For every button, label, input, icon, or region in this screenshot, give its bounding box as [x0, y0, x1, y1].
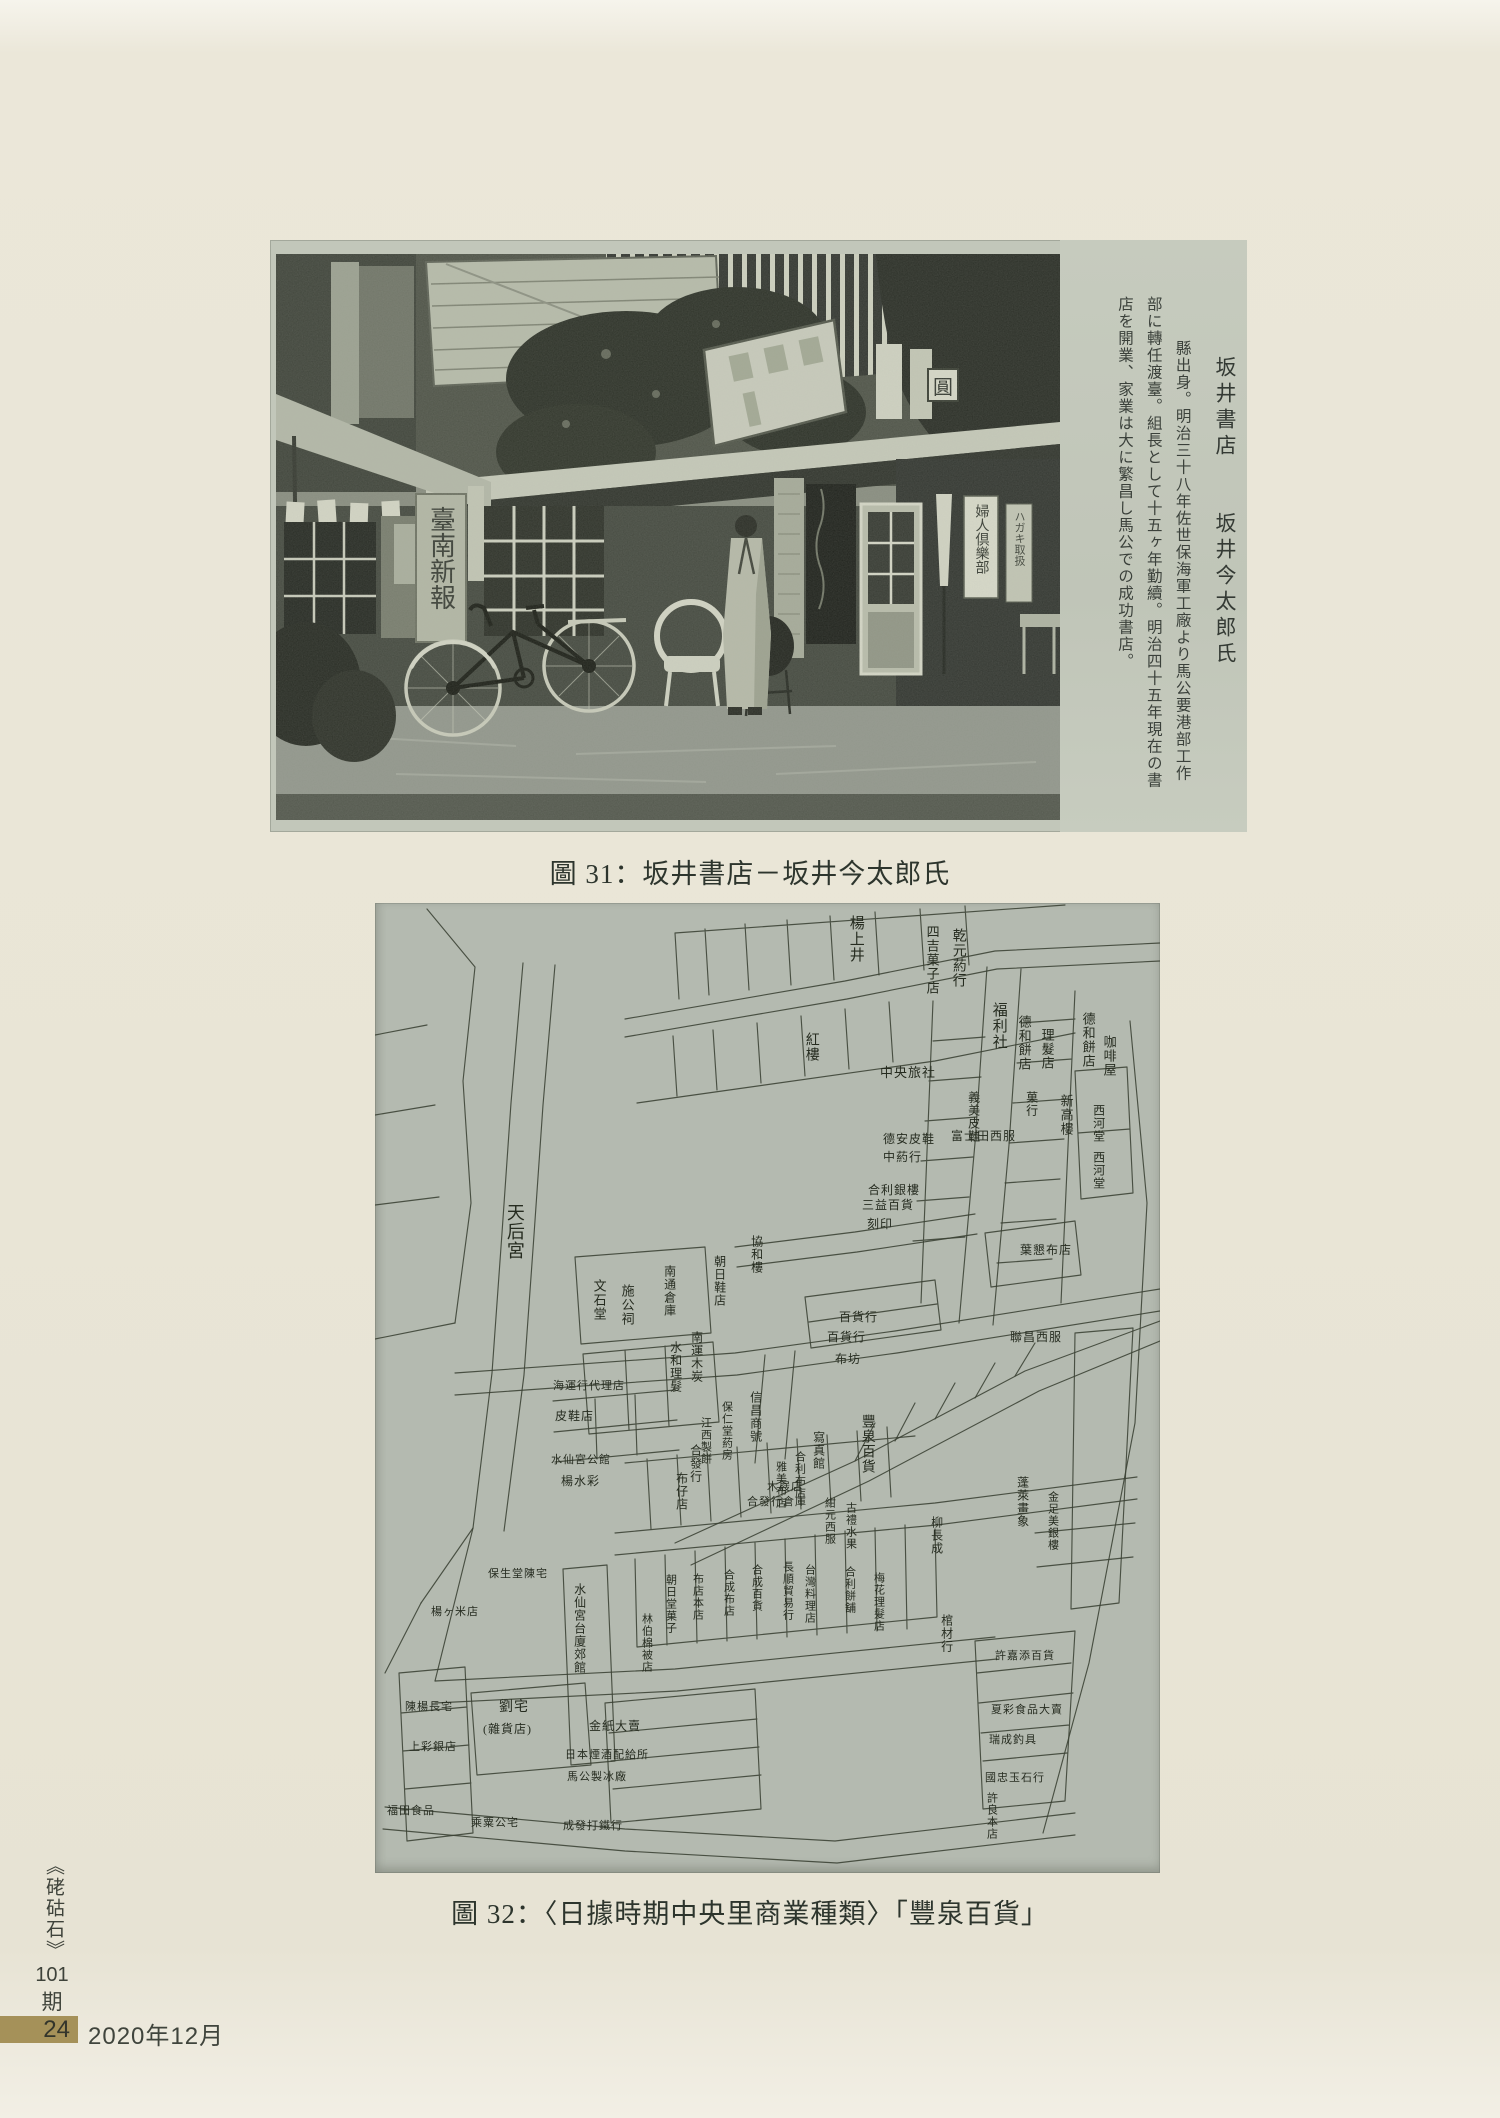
map-label: 南運木炭	[690, 1331, 703, 1383]
map-label: 台灣料理店	[803, 1564, 815, 1624]
map-label: 朝日鞋店	[713, 1255, 726, 1307]
map-label: 百貨行	[827, 1331, 866, 1344]
map-label: 信昌商號	[749, 1391, 762, 1443]
photo-side-line-3: 店を開業、家業は大に繁昌し馬公での成功書店。	[1116, 256, 1132, 818]
page-number: 24	[43, 2016, 70, 2044]
map-label: 刻印	[867, 1218, 893, 1231]
issue-date: 2020年12月	[88, 2016, 224, 2051]
map-label: 棺材行	[940, 1614, 953, 1653]
map-label: 長順貿易行	[781, 1561, 793, 1621]
map-label: 福利社	[990, 1002, 1006, 1050]
map-label: 咖啡屋	[1102, 1035, 1116, 1077]
map-label: 水仙宮公館	[551, 1455, 611, 1467]
map-label: 水仙宮台廈郊館	[573, 1583, 586, 1674]
figure-31-caption: 圖 31：坂井書店－坂井今太郎氏	[0, 852, 1500, 891]
map-label: 紅樓	[803, 1032, 818, 1062]
map-label: 皮鞋店	[555, 1410, 594, 1423]
map-label: 楊ヶ米店	[431, 1607, 479, 1619]
map-label: 菓行	[1025, 1091, 1038, 1117]
map-label: 紺元西服	[823, 1497, 835, 1545]
map-label: 中央旅社	[880, 1066, 936, 1080]
photo-grain-overlay	[276, 254, 1060, 820]
map-label: 劉宅	[499, 1701, 529, 1716]
bookstore-photo: 圓 臺南新報	[276, 254, 1060, 820]
figure-32-map-block: 天后宮楊上井乾元葯行四吉菓子店福利社德和餅店理髮店德和餅店咖啡屋紅樓中央旅社義美…	[375, 903, 1160, 1873]
map-label: 許良本店	[985, 1792, 997, 1840]
map-label: 古禮水果	[844, 1502, 856, 1550]
map-label: 布坊	[835, 1353, 861, 1366]
photo-side-title: 坂井書店 坂井今太郎氏	[1214, 256, 1235, 818]
map-label: 中葯行	[883, 1151, 922, 1164]
map-label: 夏彩食品大賣	[991, 1705, 1063, 1717]
map-label: 陳楊長宅	[405, 1702, 453, 1714]
map-label: 德和餅店	[1081, 1012, 1095, 1068]
map-label: 金紙大賣	[589, 1720, 641, 1733]
map-labels: 天后宮楊上井乾元葯行四吉菓子店福利社德和餅店理髮店德和餅店咖啡屋紅樓中央旅社義美…	[375, 903, 1160, 1873]
map-label: 富士田西服	[951, 1130, 1016, 1143]
map-label: 四吉菓子店	[925, 925, 939, 995]
map-label: 乘粟公宅	[471, 1818, 519, 1830]
photo-side-text-panel: 坂井書店 坂井今太郎氏 縣出身。明治三十八年佐世保海軍工廠より馬公要港部工作 部…	[1060, 240, 1247, 832]
scanned-journal-page: { "figure31": { "caption": "圖 31：坂井書店－坂井…	[0, 0, 1500, 2118]
map-label: 日本煙酒配給所	[565, 1750, 649, 1762]
map-label: 合利銀樓	[868, 1184, 920, 1197]
map-label: 木屐店	[767, 1482, 803, 1494]
figure-31-photo-block: 圓 臺南新報	[270, 240, 1247, 832]
map-label: 金足美銀樓	[1046, 1491, 1058, 1551]
map-label: 西河堂	[1092, 1104, 1105, 1143]
map-label: 寫真館	[812, 1431, 825, 1470]
map-label: 合成布店	[722, 1569, 734, 1617]
map-label: 理髮店	[1040, 1028, 1054, 1070]
map-label: 協和樓	[750, 1235, 763, 1274]
map-label: 天后宮	[505, 1203, 524, 1260]
map-label: 上彩銀店	[409, 1742, 457, 1754]
map-label: 成發打鐵行	[563, 1821, 623, 1833]
map-label: 乾元葯行	[950, 928, 965, 988]
map-label: 保生堂陳宅	[488, 1569, 548, 1581]
map-label: 葉懇布店	[1020, 1244, 1072, 1257]
map-label: 合發行	[689, 1444, 702, 1483]
map-label: 蓬萊畫象	[1016, 1476, 1029, 1528]
map-label: 梅花理髮店	[872, 1572, 884, 1632]
map-label: 國忠玉石行	[985, 1773, 1045, 1785]
map-label: (雜貨店)	[483, 1723, 532, 1736]
map-label: 豐泉百貨	[859, 1414, 874, 1474]
map-label: 西河堂	[1092, 1151, 1105, 1190]
map-label: 南通倉庫	[663, 1265, 676, 1317]
map-label: 朝日堂菓子	[664, 1574, 676, 1634]
map-label: 布仔店	[675, 1472, 688, 1511]
map-label: 許嘉添百貨	[995, 1651, 1055, 1663]
map-label: 施公祠	[620, 1284, 634, 1326]
map-label: 合發行倉庫	[747, 1497, 807, 1509]
map-label: 聯昌西服	[1010, 1331, 1062, 1344]
map-label: 瑞成釣具	[989, 1735, 1037, 1747]
map-label: 柳長成	[930, 1516, 943, 1555]
map-label: 楊水彩	[561, 1475, 600, 1488]
photo-side-line-2: 部に轉任渡臺。組長として十五ヶ年勤續。明治四十五年現在の書	[1145, 256, 1161, 818]
map-label: 福田食品	[387, 1806, 435, 1818]
map-label: 德和餅店	[1017, 1015, 1031, 1071]
map-label: 保仁堂葯房	[720, 1401, 732, 1461]
map-label: 德安皮鞋	[883, 1133, 935, 1146]
map-label: 百貨行	[839, 1311, 878, 1324]
map-label: 合成百貨	[750, 1564, 762, 1612]
map-label: 布店本店	[691, 1573, 703, 1621]
page-number-band: 24	[0, 2016, 78, 2043]
journal-issue-suffix: 期	[30, 1986, 74, 2016]
map-label: 三益百貨	[862, 1199, 914, 1212]
journal-title: 《硓𥑮石》	[40, 1856, 67, 1961]
map-label: 合利餅舖	[843, 1566, 855, 1614]
photo-side-line-1: 縣出身。明治三十八年佐世保海軍工廠より馬公要港部工作	[1174, 256, 1190, 818]
map-label: 海運行代理店	[553, 1381, 625, 1393]
figure-32-caption: 圖 32：〈日據時期中央里商業種類〉「豐泉百貨」	[0, 1892, 1500, 1931]
map-label: 文石堂	[592, 1279, 606, 1321]
map-label: 馬公製冰廠	[567, 1772, 627, 1784]
map-label: 楊上井	[847, 915, 863, 963]
map-label: 林伯棉被店	[640, 1613, 652, 1673]
journal-issue-number: 101	[30, 1964, 74, 1987]
map-label: 新高樓	[1059, 1094, 1073, 1136]
map-label: 水和理髮	[669, 1341, 682, 1393]
